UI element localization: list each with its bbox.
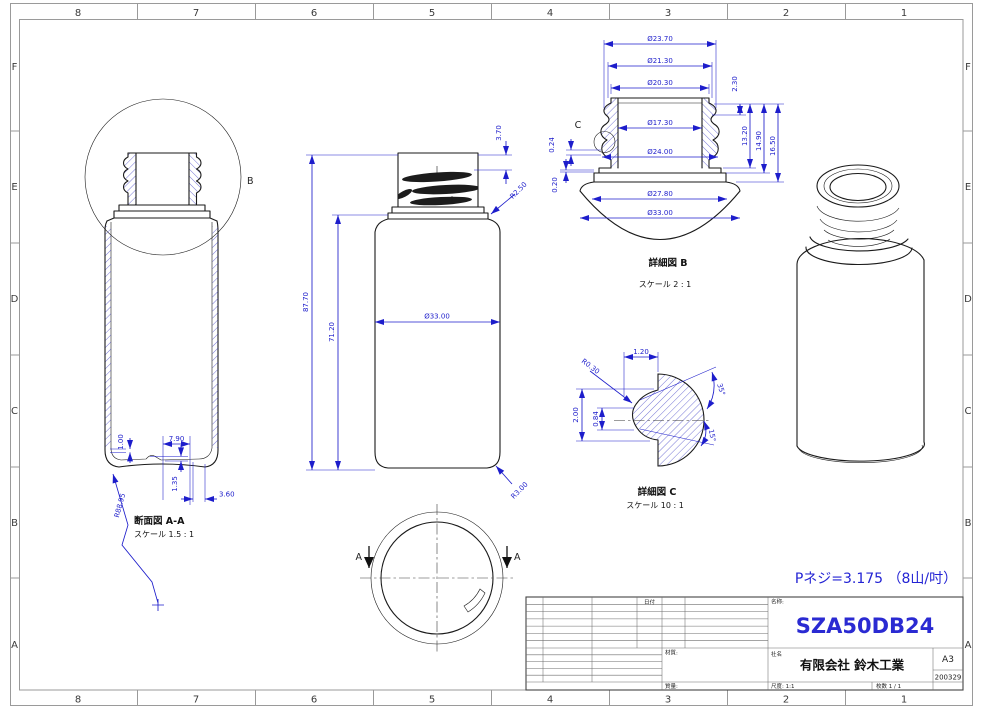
company-name: 有限会社 鈴木工業 xyxy=(800,658,905,673)
detail-b-marker: B xyxy=(247,176,254,187)
dim-inner-0-84: 0.84 xyxy=(592,411,600,427)
grid-col-label: 3 xyxy=(665,695,671,706)
title-block: 日付 名称: SZA50DB24 材質: 社名 有限会社 鈴木工業 A3 200… xyxy=(526,597,963,690)
detail-c-scale: スケール 10 : 1 xyxy=(626,501,684,510)
drawing-number: 200329 xyxy=(935,674,962,682)
detail-c-marker: C xyxy=(575,120,582,131)
sheet-count: 枚数 1 / 1 xyxy=(876,682,901,690)
section-view-title: 断面図 A-A xyxy=(134,515,185,527)
part-number: SZA50DB24 xyxy=(796,614,935,638)
detail-c-title: 詳細図 C xyxy=(638,486,677,498)
grid-col-label: 3 xyxy=(665,8,671,19)
dim-h-13-20: 13.20 xyxy=(741,126,749,146)
section-view-scale: スケール 1.5 : 1 xyxy=(134,530,194,539)
engineering-drawing-svg: 8 7 6 5 4 3 2 1 8 7 6 5 4 3 2 1 F E D C … xyxy=(0,0,983,709)
grid-row-label: F xyxy=(965,62,971,73)
dim-t-0-20: 0.20 xyxy=(551,177,559,193)
dim-neck-top: 3.70 xyxy=(495,125,503,141)
grid-col-label: 7 xyxy=(193,8,199,19)
detail-b-scale: スケール 2 : 1 xyxy=(639,280,692,289)
dim-dia-27-80: Ø27.80 xyxy=(647,190,673,198)
company-label: 社名 xyxy=(771,650,782,658)
bottom-view: A A xyxy=(356,504,522,652)
detail-b-title: 詳細図 B xyxy=(648,257,687,269)
grid-col-label: 5 xyxy=(429,8,435,19)
dim-width-1-20: 1.20 xyxy=(633,348,649,356)
dim-dia-20-30: Ø20.30 xyxy=(647,79,673,87)
grid-col-label: 2 xyxy=(783,695,789,706)
grid-row-label: A xyxy=(11,640,18,651)
grid-row-label: C xyxy=(965,406,972,417)
dim-height-2-00: 2.00 xyxy=(572,407,580,423)
grid-row-label: D xyxy=(11,294,19,305)
grid-row-label: E xyxy=(11,182,17,193)
dim-edge: 3.60 xyxy=(219,491,235,499)
grid-col-label: 2 xyxy=(783,8,789,19)
front-view: 87.70 71.20 Ø33.00 3.70 R2.50 R3.00 xyxy=(302,125,530,500)
material-label: 材質: xyxy=(665,649,678,657)
dim-dia-23-70: Ø23.70 xyxy=(647,35,673,43)
dim-h-16-50: 16.50 xyxy=(769,136,777,156)
grid-row-label: C xyxy=(11,406,18,417)
grid-row-label: A xyxy=(965,640,972,651)
scale-label: 尺度: 1:1 xyxy=(771,682,794,690)
date-header: 日付 xyxy=(644,598,656,606)
dim-body-dia: Ø33.00 xyxy=(424,313,450,321)
dim-base-width: 7.90 xyxy=(169,435,185,443)
dim-pushup: 1.35 xyxy=(171,476,179,492)
grid-row-label: B xyxy=(11,518,18,529)
grid-col-label: 8 xyxy=(75,695,81,706)
grid-col-label: 4 xyxy=(547,695,553,706)
grid-row-label: F xyxy=(12,62,18,73)
detail-b-view: C Ø23.70 Ø21.30 Ø20.30 Ø17.30 Ø24.00 Ø27… xyxy=(548,35,784,289)
grid-col-label: 7 xyxy=(193,695,199,706)
grid-row-label: D xyxy=(964,294,972,305)
mass-label: 質量: xyxy=(665,682,678,690)
dim-tip-radius: R0.30 xyxy=(580,357,601,376)
dim-t-0-24: 0.24 xyxy=(548,137,556,153)
thread-spec-note: Pネジ=3.175 （8山/吋） xyxy=(795,571,957,587)
grid-col-label: 1 xyxy=(901,8,907,19)
dim-base-radius: R3.00 xyxy=(510,481,530,501)
dim-dia-21-30: Ø21.30 xyxy=(647,57,673,65)
grid-col-label: 4 xyxy=(547,8,553,19)
dim-dia-24-00: Ø24.00 xyxy=(647,148,673,156)
sheet-size: A3 xyxy=(942,655,954,665)
dim-h-2-30: 2.30 xyxy=(731,76,739,92)
grid-row-label: E xyxy=(965,182,971,193)
dim-wall: 1.00 xyxy=(117,434,125,450)
isometric-view xyxy=(797,165,924,463)
grid-col-label: 8 xyxy=(75,8,81,19)
border-grid: 8 7 6 5 4 3 2 1 8 7 6 5 4 3 2 1 F E D C … xyxy=(11,4,973,706)
grid-col-label: 6 xyxy=(311,695,317,706)
drawing-sheet: 8 7 6 5 4 3 2 1 8 7 6 5 4 3 2 1 F E D C … xyxy=(0,0,983,709)
dim-dia-33-00: Ø33.00 xyxy=(647,209,673,217)
dim-angle-15: 15° xyxy=(707,429,717,443)
dim-total-height: 87.70 xyxy=(302,292,310,312)
dim-h-14-90: 14.90 xyxy=(755,131,763,151)
grid-row-label: B xyxy=(965,518,972,529)
detail-c-view: 2.00 0.84 1.20 R0.30 35° 15° 詳細図 C スケール … xyxy=(572,348,727,510)
dim-shoulder-radius: R2.50 xyxy=(509,181,529,201)
grid-col-label: 5 xyxy=(429,695,435,706)
grid-col-label: 1 xyxy=(901,695,907,706)
dim-dia-17-30: Ø17.30 xyxy=(647,119,673,127)
name-label: 名称: xyxy=(771,598,784,606)
dim-angle-35: 35° xyxy=(715,382,726,396)
section-view: B 7.90 1.00 1.35 3.60 R88.95 断面図 xyxy=(85,99,254,611)
cut-arrow-label: A xyxy=(514,552,521,563)
grid-col-label: 6 xyxy=(311,8,317,19)
dim-body-height: 71.20 xyxy=(328,322,336,342)
cut-arrow-label: A xyxy=(356,552,363,563)
